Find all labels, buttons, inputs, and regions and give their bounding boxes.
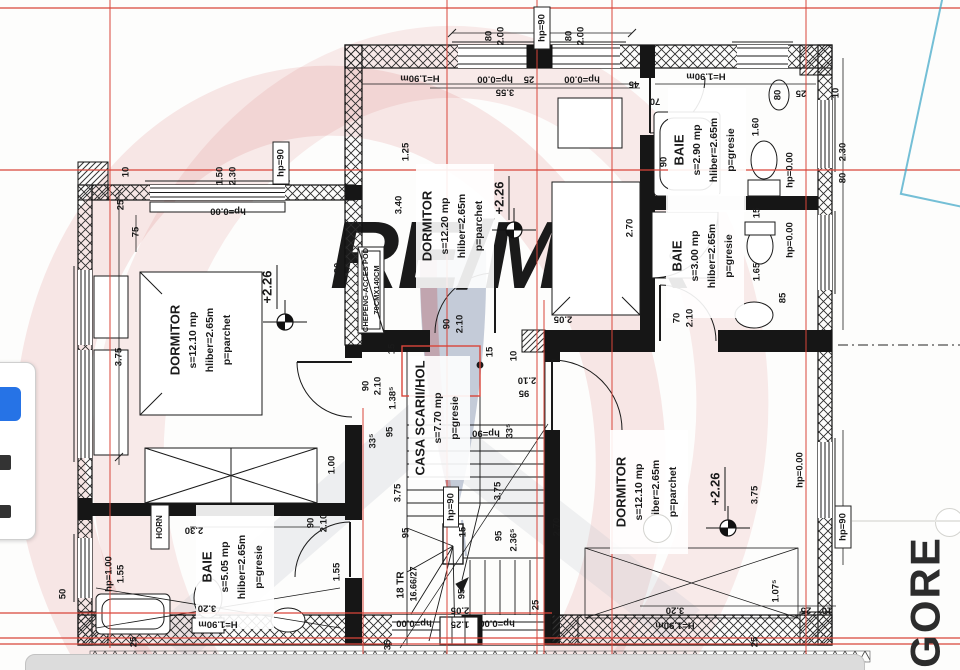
door — [297, 362, 352, 417]
dim-label: 2.36⁵ — [509, 529, 520, 552]
dim-label: 33⁵ — [368, 433, 379, 448]
scanned-floor-plan-page: RE/MAX — [0, 0, 960, 670]
dim-label: 2.10 — [373, 377, 384, 396]
dim-label: 95 — [518, 387, 529, 398]
room-label-casa-scarii-hol: s=7.70 mp — [432, 392, 444, 443]
dim-label: 2.00 — [496, 27, 507, 46]
dim-label: hp=0.00 — [795, 452, 806, 488]
dim-label: 2.00 — [576, 27, 587, 46]
room-label-dormitor-top: hliber=2.65m — [456, 194, 468, 259]
dim-label: 25 — [116, 199, 127, 210]
room-label-baie-mid: BAIE — [669, 240, 684, 271]
dim-label: 85 — [778, 292, 789, 303]
dim-label: 1.50 — [215, 167, 226, 186]
dim-label: 25 — [523, 73, 534, 84]
fold-crease — [852, 520, 960, 522]
dim-label: H=1.90m — [655, 619, 694, 630]
room-label-baie-mid: p=gresie — [723, 234, 735, 278]
dim-label: 2.05 — [553, 313, 572, 324]
dim-label: 90 — [442, 319, 453, 330]
side-name-text: IGORE — [902, 547, 950, 670]
room-label-baie-top: BAIE — [671, 134, 686, 165]
room-label-dormitor-left: DORMITOR — [167, 304, 182, 375]
dim-label: 2.10 — [319, 514, 330, 533]
dim-label: hp=90 — [838, 513, 849, 541]
dim-label: 3.75 — [393, 483, 404, 502]
dim-label: H=1.90m — [400, 72, 439, 83]
dim-label: 80 — [838, 173, 849, 184]
hole-punch — [935, 508, 960, 537]
dim-label: 15 — [485, 346, 496, 357]
dim-label: hp=0.00 — [396, 617, 432, 628]
room-label-baie-top: hliber=2.65m — [708, 118, 720, 183]
dim-label: hp=0.00 — [210, 205, 246, 216]
dim-label: 2.10 — [685, 309, 696, 328]
dim-label: 3.20 — [666, 604, 685, 615]
floor-plan-drawing: RE/MAX — [0, 0, 960, 670]
dim-label: 95 — [494, 530, 505, 541]
toolbar-icon[interactable] — [0, 505, 11, 518]
dim-label: 1.55 — [116, 564, 127, 583]
dim-label: 3.55 — [495, 86, 514, 97]
dim-label: hp=0.00 — [479, 617, 515, 628]
room-label-dormitor-top: s=12.20 mp — [439, 198, 451, 255]
dim-label: 2.70 — [625, 219, 636, 238]
bathtub — [96, 594, 170, 634]
dim-label: 25 — [800, 604, 811, 615]
dim-label: 90 — [659, 157, 670, 168]
room-label-baie-mid: hliber=2.65m — [706, 224, 718, 289]
level-marker-symbol — [263, 300, 307, 330]
dim-label: 1.38⁵ — [388, 387, 399, 410]
room-label-casa-scarii-hol: CASA SCARII/HOL — [412, 360, 427, 475]
dim-label: 10 — [831, 88, 842, 99]
dim-label: 3.40 — [394, 196, 405, 215]
room-label-dormitor-bottom: p=parchet — [667, 466, 679, 517]
dim-label: 95 — [401, 527, 412, 538]
bed — [552, 182, 640, 315]
dim-label: 1.00 — [327, 456, 338, 475]
dim-label: 1.25 — [450, 618, 469, 629]
dim-label: hp=90 — [537, 14, 548, 42]
dim-label: 2.05 — [450, 604, 469, 615]
hole-punch — [643, 514, 672, 543]
dim-label: 90 — [306, 518, 317, 529]
dim-label: hp=0.00 — [477, 73, 513, 84]
dim-label: 2.10 — [518, 374, 537, 385]
dim-label: 15 — [387, 343, 398, 354]
room-label-casa-scarii-hol: p=gresie — [449, 396, 461, 440]
dim-label: 75 — [131, 226, 142, 237]
dim-label: 1.07⁵ — [771, 580, 782, 603]
dim-label: 33⁵ — [505, 423, 516, 438]
dim-label: 70CMX140CM — [372, 265, 381, 314]
dim-label: 1.25 — [401, 142, 412, 161]
background-window-edge — [25, 654, 865, 670]
dim-label: 3.75 — [750, 485, 761, 504]
dim-label: hp=0.00 — [564, 73, 600, 84]
dim-label: 70 — [672, 313, 683, 324]
dim-label: 50 — [58, 589, 69, 600]
dim-label: 25 — [750, 636, 761, 647]
toolbar-primary-button[interactable] — [0, 387, 21, 421]
dim-label: 2.70 — [552, 518, 563, 537]
dim-label: 15 — [752, 207, 763, 218]
dim-label: H=1.90m — [198, 618, 237, 629]
dim-label: 95 — [457, 588, 468, 599]
dim-label: hp=90 — [446, 493, 457, 521]
room-label-dormitor-left: s=12.10 mp — [187, 312, 199, 369]
dim-label: 2.10 — [455, 315, 466, 334]
dim-label: hp=90 — [276, 149, 287, 177]
room-label-baie-bottom: BAIE — [199, 551, 214, 582]
dim-label: hp=0.00 — [785, 152, 796, 188]
dim-label: 90 — [361, 381, 372, 392]
dim-label: hp=1.00 — [104, 556, 115, 592]
room-label-dormitor-top: DORMITOR — [419, 190, 434, 261]
room-label-baie-mid: s=3.00 mp — [689, 230, 701, 281]
dim-label: hp=90 — [472, 427, 500, 438]
dim-label: 3.75 — [493, 481, 504, 500]
room-label-baie-top: s=2.90 mp — [691, 124, 703, 175]
toolbar-icon[interactable] — [0, 455, 11, 470]
room-label-dormitor-top: p=parchet — [473, 200, 485, 251]
dim-label: 15 — [458, 526, 469, 537]
dim-label: 2.30 — [185, 524, 204, 535]
dim-label: 80 — [484, 31, 495, 42]
room-label-baie-bottom: s=5.05 mp — [219, 541, 231, 592]
dim-label: 1.55 — [332, 562, 343, 581]
dim-label: 35 — [383, 639, 394, 650]
dim-label: 1.60 — [751, 118, 762, 137]
dim-label: 1.65 — [752, 262, 763, 281]
room-label-dormitor-left: hliber=2.65m — [204, 308, 216, 373]
room-label-dormitor-bottom: s=12.10 mp — [633, 464, 645, 521]
dim-label: 25 — [129, 636, 140, 647]
viewer-toolbar-fragment[interactable] — [0, 362, 36, 540]
dim-label: 1.80 — [333, 263, 344, 282]
dim-label: 10 — [509, 351, 520, 362]
window — [732, 42, 793, 68]
dim-label: 80 — [564, 31, 575, 42]
window — [452, 42, 534, 68]
dim-label: HORN — [155, 515, 164, 539]
dim-label: 3.75 — [114, 347, 125, 366]
room-label-dormitor-left: p=parchet — [221, 314, 233, 365]
wardrobe — [145, 448, 317, 503]
room-label-dormitor-bottom: DORMITOR — [613, 456, 628, 527]
dim-label: 16.66/27 — [408, 566, 418, 601]
room-label-baie-bottom: hliber=2.65m — [236, 535, 248, 600]
dim-label: 45 — [628, 78, 639, 89]
dim-label: 2.30 — [838, 143, 849, 162]
dim-label: 10 — [121, 167, 132, 178]
level-label: +2.26 — [259, 271, 274, 304]
room-label-baie-top: p=gresie — [725, 128, 737, 172]
room-label-baie-bottom: p=gresie — [253, 545, 265, 589]
level-label: +2.26 — [707, 473, 722, 506]
washbasin — [271, 608, 305, 632]
dim-label: 95 — [385, 426, 396, 437]
level-label: +2.26 — [491, 182, 506, 215]
dim-label: 25 — [795, 87, 806, 98]
dim-label: 25 — [531, 599, 542, 610]
dim-label: 70 — [650, 95, 661, 106]
dim-label: 80 — [773, 90, 784, 101]
radiator — [94, 276, 128, 338]
dim-label: 2.30 — [228, 167, 239, 186]
dim-label: 3.20 — [198, 602, 217, 613]
dim-label: hp=0.00 — [785, 222, 796, 258]
toilet — [748, 141, 780, 196]
dim-label: 18 TR — [396, 571, 407, 599]
dim-label: H=1.90m — [686, 70, 725, 81]
dim-label: CHEPENG-ACCES POD — [361, 247, 370, 332]
toilet — [745, 222, 775, 264]
dim-label: 10 — [822, 604, 833, 615]
